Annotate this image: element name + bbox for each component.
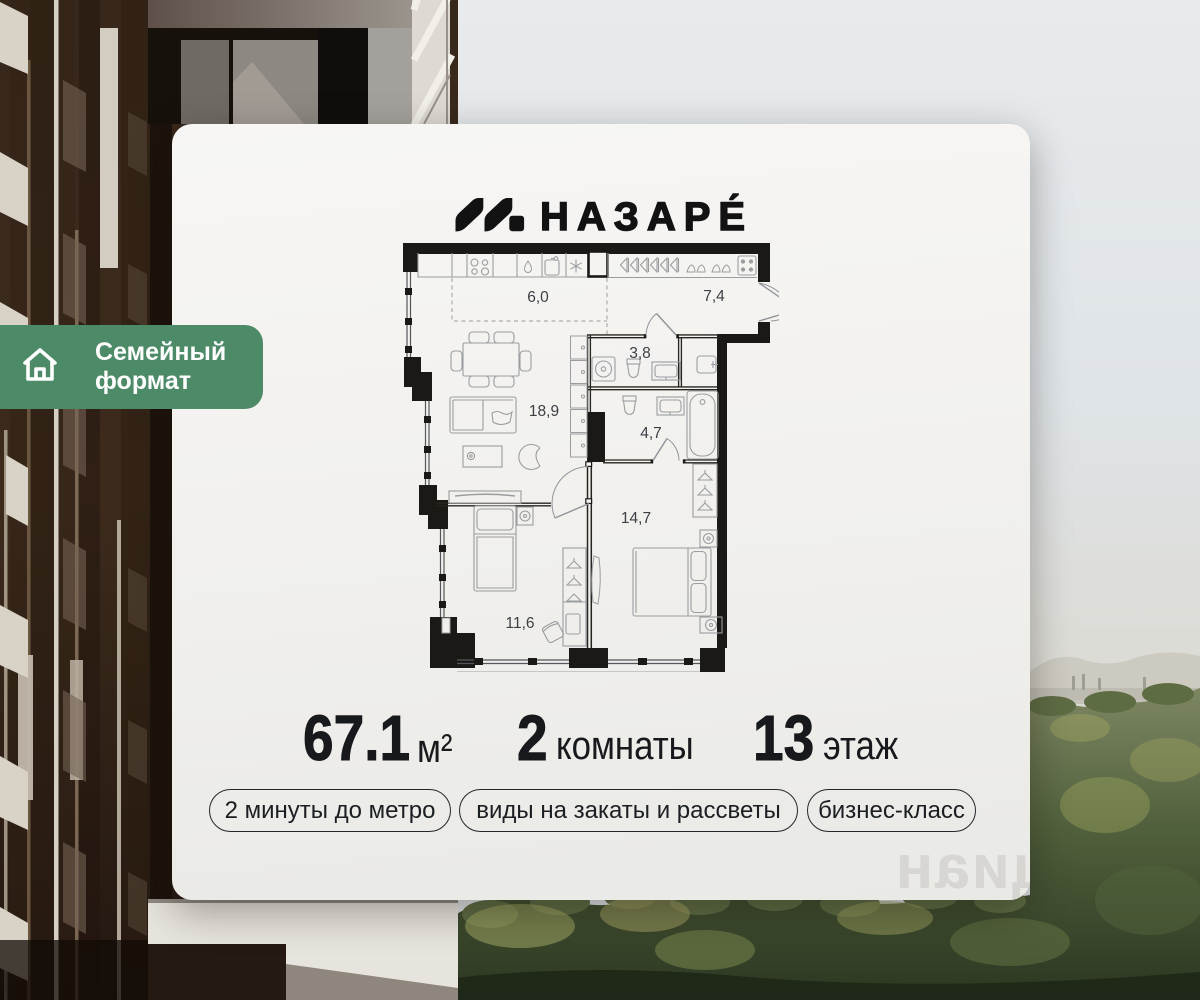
svg-text:14,7: 14,7: [621, 510, 651, 527]
svg-text:7,4: 7,4: [703, 288, 725, 305]
svg-text:11,6: 11,6: [505, 615, 534, 632]
svg-text:18,9: 18,9: [529, 403, 559, 420]
svg-text:6,0: 6,0: [527, 289, 549, 306]
svg-text:4,7: 4,7: [640, 425, 662, 442]
svg-text:3,8: 3,8: [629, 345, 651, 362]
